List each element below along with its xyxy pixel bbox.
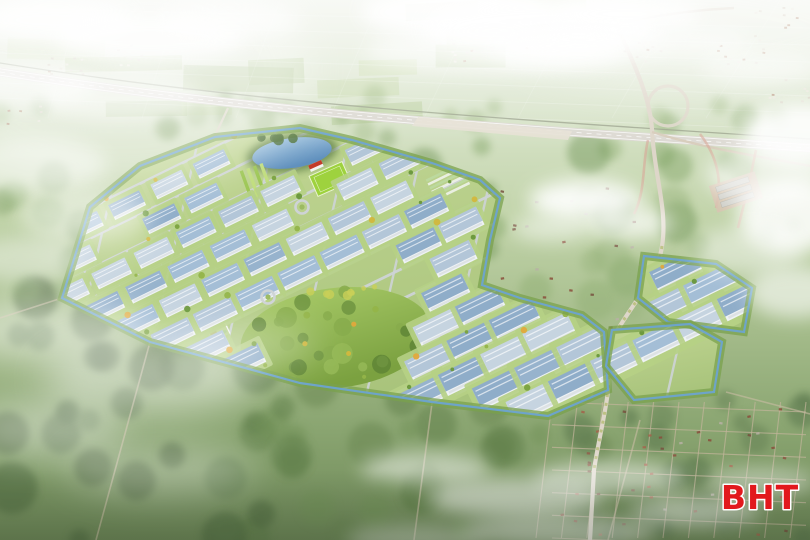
bottom-vignette <box>0 470 810 540</box>
aerial-rendering-canvas: BHT <box>0 0 810 540</box>
masterplan-scene <box>0 0 810 540</box>
